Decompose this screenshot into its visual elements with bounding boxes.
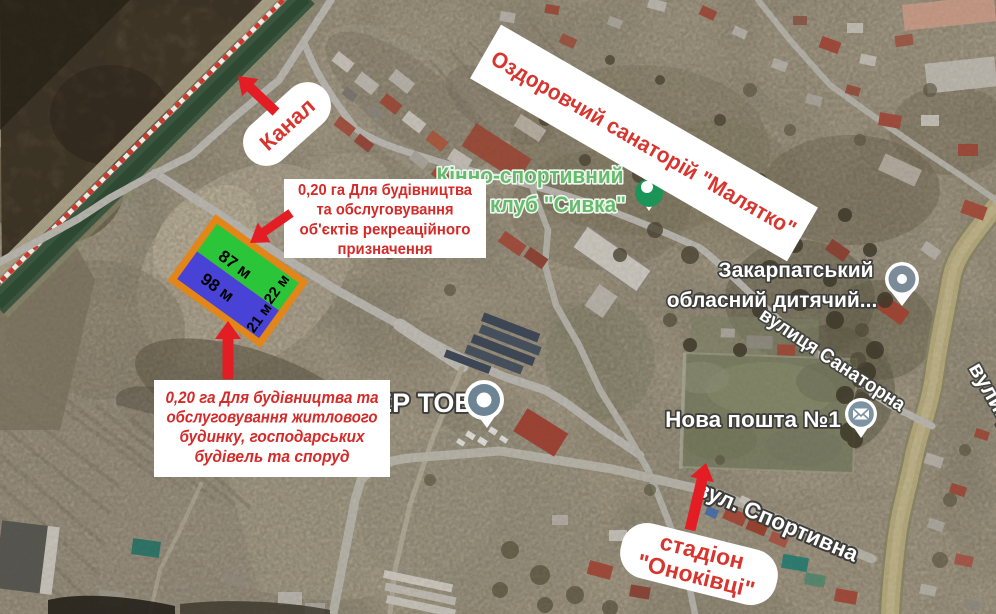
svg-text:0,20 га Для будівництва: 0,20 га Для будівництва <box>298 182 472 199</box>
svg-text:Закарпатський: Закарпатський <box>718 259 873 282</box>
svg-text:будинку, господарських: будинку, господарських <box>180 427 366 446</box>
svg-text:та обслуговування: та обслуговування <box>317 202 454 219</box>
svg-text:0,20 га Для будівництва та: 0,20 га Для будівництва та <box>166 388 379 407</box>
svg-text:будівель та споруд: будівель та споруд <box>195 447 350 466</box>
svg-text:Нова пошта №1: Нова пошта №1 <box>665 407 841 432</box>
svg-text:клуб "Сивка": клуб "Сивка" <box>490 192 626 217</box>
svg-text:призначення: призначення <box>338 241 433 258</box>
svg-text:обслуговування житлового: обслуговування житлового <box>167 408 378 427</box>
svg-text:об'єктів рекреаційного: об'єктів рекреаційного <box>300 221 471 238</box>
